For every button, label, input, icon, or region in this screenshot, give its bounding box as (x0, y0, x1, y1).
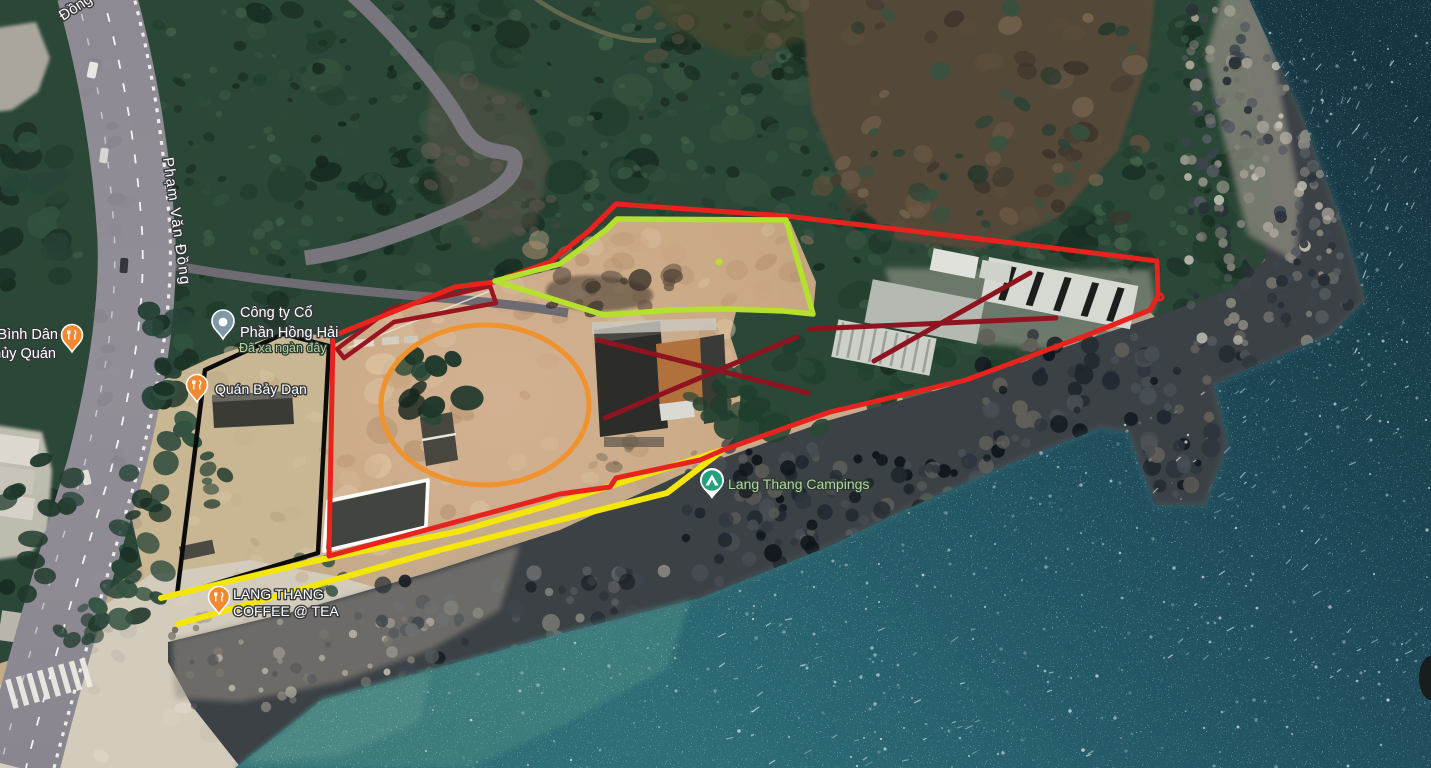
svg-text:Công ty Cổ: Công ty Cổ (240, 305, 313, 321)
svg-text:Quán Bảy Dạn: Quán Bảy Dạn (215, 381, 307, 397)
svg-text:Lang Thang Campings: Lang Thang Campings (728, 476, 869, 492)
svg-text:LANG THANG: LANG THANG (233, 586, 324, 602)
svg-text:Bình Dân: Bình Dân (0, 327, 58, 343)
svg-text:COFFEE @ TEA: COFFEE @ TEA (233, 603, 339, 619)
svg-text:Phần Hồng Hải: Phần Hồng Hải (240, 325, 338, 341)
svg-text:hủy Quán: hủy Quán (0, 346, 56, 362)
svg-text:Đã xa ngàn đây: Đã xa ngàn đây (239, 341, 327, 355)
